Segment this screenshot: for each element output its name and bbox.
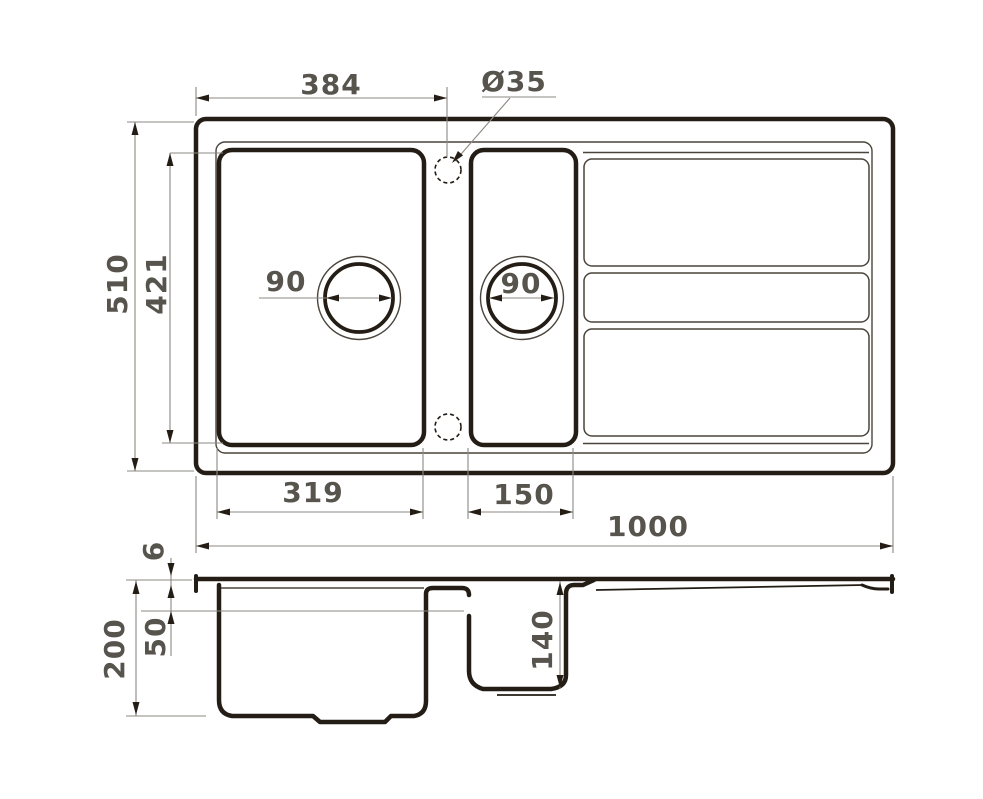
dim-label-90-right: 90	[501, 267, 542, 300]
section-view: 6 200 50 140	[98, 541, 893, 722]
dim-label-200: 200	[98, 618, 131, 679]
arrow-150-left	[468, 509, 481, 516]
dim-label-150: 150	[493, 478, 554, 511]
dimension-labels-section: 6 200 50 140	[98, 541, 559, 680]
arrow-384-right	[434, 95, 447, 102]
arrow-1000-left	[196, 543, 209, 550]
arrow-90L-left	[326, 295, 339, 302]
arrow-90L-right	[379, 295, 392, 302]
dim-label-6: 6	[137, 541, 170, 561]
arrow-200-top	[133, 581, 140, 594]
dim-label-384: 384	[300, 68, 361, 101]
arrow-140-top	[557, 582, 564, 595]
dim-label-90-left: 90	[266, 265, 307, 298]
arrow-510-top	[132, 122, 139, 135]
arrow-421-top	[167, 153, 174, 166]
drainboard-panel-middle	[584, 273, 869, 322]
arrow-510-bottom	[132, 458, 139, 471]
drainboard-right-step	[862, 585, 888, 589]
sink-technical-drawing: 384 Ø35 510 421 90 90 319 150 1000	[0, 0, 983, 799]
drainboard-panel-bottom	[584, 329, 869, 436]
dim-label-421: 421	[140, 253, 173, 314]
arrow-150-right	[560, 509, 573, 516]
dim-label-510: 510	[101, 253, 134, 314]
arrow-6-top	[168, 563, 175, 576]
arrow-319-right	[410, 509, 423, 516]
arrow-421-bottom	[167, 430, 174, 443]
arrow-90R-right	[541, 295, 554, 302]
tap-hole-top	[435, 157, 461, 183]
drawing-canvas: 384 Ø35 510 421 90 90 319 150 1000	[0, 0, 983, 799]
arrow-200-bottom	[133, 702, 140, 715]
dim-label-319: 319	[282, 476, 343, 509]
drainboard-panel-top	[584, 159, 869, 266]
arrow-384-left	[196, 95, 209, 102]
dim-label-140: 140	[526, 609, 559, 670]
arrow-6-bottom	[168, 585, 175, 598]
dim-label-d35: Ø35	[481, 65, 547, 98]
top-view: 384 Ø35 510 421 90 90 319 150 1000	[101, 65, 893, 553]
arrow-1000-right	[880, 543, 893, 550]
dimension-lines-section	[126, 558, 560, 716]
dim-label-1000: 1000	[607, 510, 689, 543]
drainboard-slope-line	[596, 585, 864, 590]
tap-hole-bottom	[435, 414, 461, 440]
arrow-319-left	[217, 509, 230, 516]
dim-label-50: 50	[139, 617, 172, 658]
